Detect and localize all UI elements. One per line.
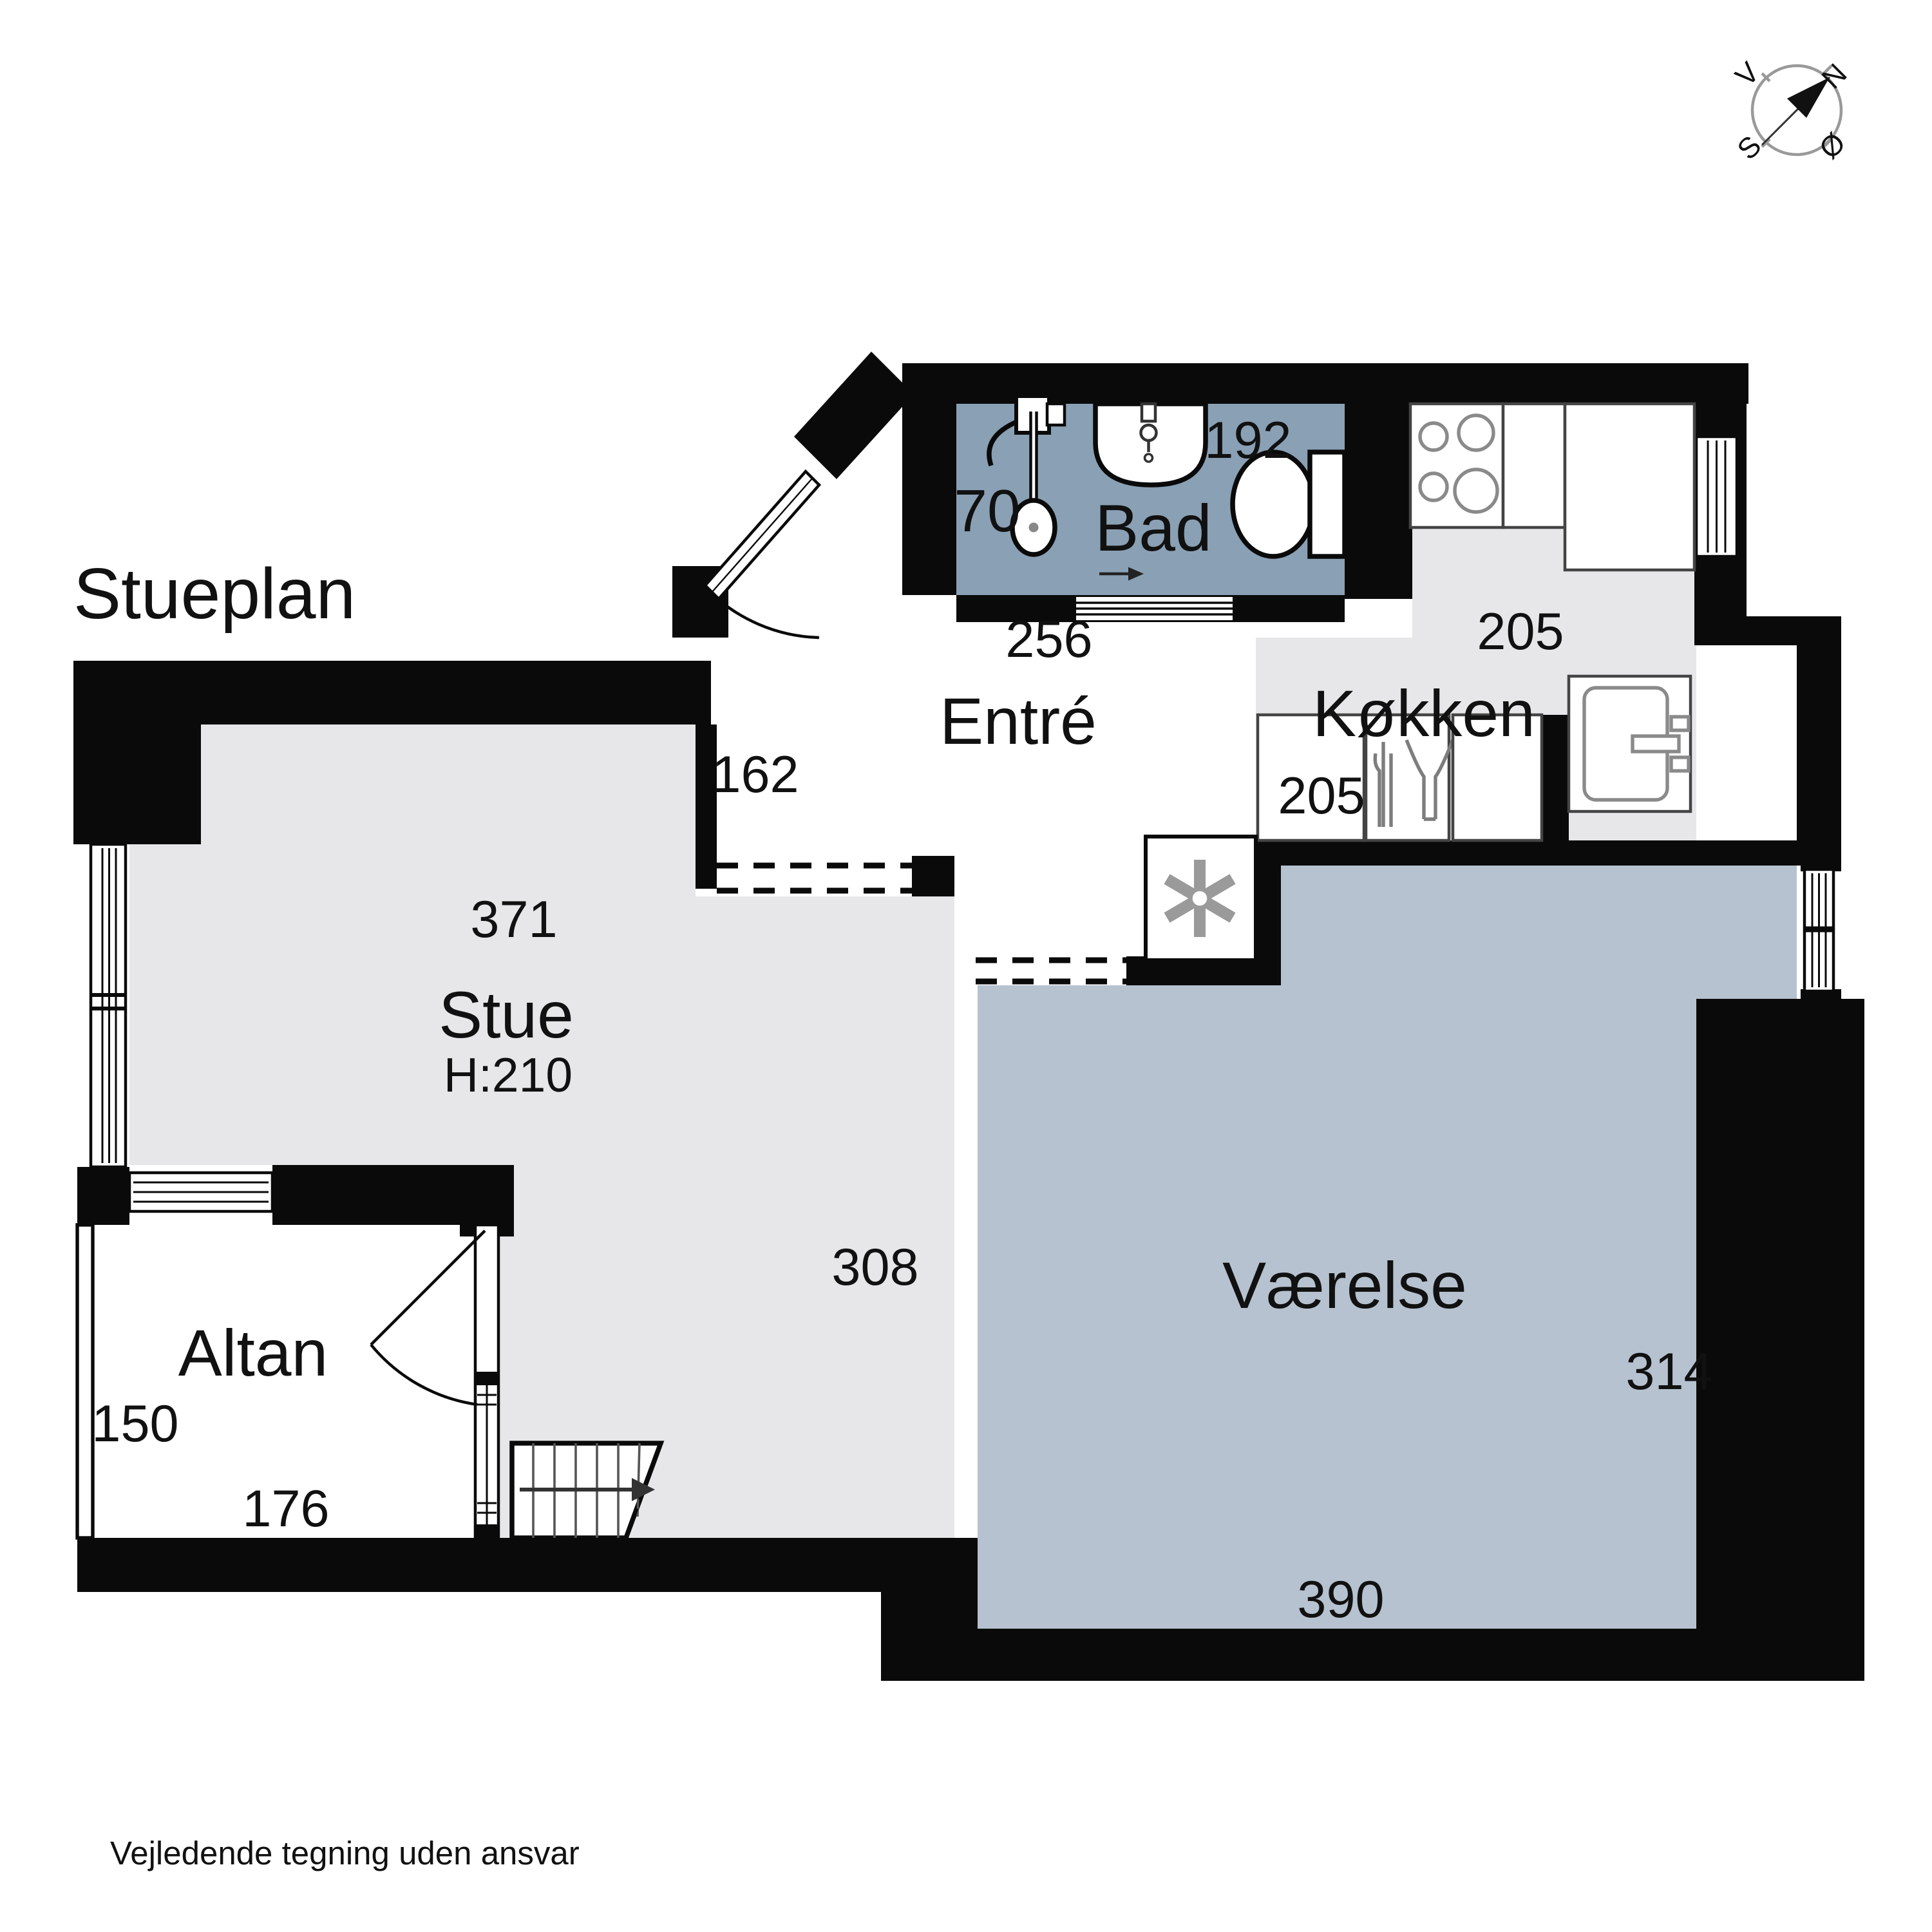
stue-label: Stue [439,978,574,1052]
compass-needle-icon [1787,77,1830,118]
entre-dim-width: 256 [1005,611,1092,668]
compass-east: Ø [1813,126,1852,166]
floor-plan-canvas: N V S Ø Stueplan Vejledende tegning uden… [0,0,1932,1932]
washing-machine-icon [1146,837,1256,960]
stue-dim-width: 371 [470,891,557,949]
kokken-dim-width: 205 [1477,603,1564,661]
floor-plan-svg: N V S Ø Stueplan Vejledende tegning uden… [0,0,1932,1932]
kitchen-sink-icon [1569,676,1690,811]
altan-door-swing-arc [371,1345,477,1405]
footer-disclaimer: Vejledende tegning uden ansvar [110,1835,580,1871]
stue-entre-opening [717,866,912,891]
altan-dim-depth: 150 [91,1395,178,1453]
altan-dim-width: 176 [242,1480,329,1538]
page-title: Stueplan [73,554,355,634]
stue-altan-window [129,1173,272,1211]
bad-dim-shower: 70 [954,477,1020,544]
kitchen-counter-right [1565,404,1694,570]
kitchen-counter [1503,404,1565,527]
entre-dim-depth: 162 [712,746,799,804]
compass-south: S [1730,129,1767,166]
altan-railing [77,1225,93,1538]
stue-left-window [91,844,126,1167]
vaerelse-window [1804,869,1833,991]
altan-label: Altan [178,1316,328,1390]
entre-vaerelse-opening [976,960,1126,981]
vaerelse-label: Værelse [1222,1249,1467,1322]
stue-floor [129,724,954,1538]
stove-icon [1410,404,1503,527]
sliding-door-icon [1076,597,1233,620]
compass: N V S Ø [1728,55,1853,166]
stue-ceiling-height: H:210 [444,1048,573,1102]
entre-label: Entré [940,685,1097,758]
altan-door-frame [475,1225,498,1540]
bad-dim-width: 192 [1204,412,1291,469]
bathroom-sink-icon [1095,404,1206,485]
vaerelse-dim-depth: 314 [1625,1343,1712,1401]
stue-dim-depth: 308 [831,1238,918,1296]
kokken-label: Køkken [1312,677,1535,750]
vaerelse-dim-width: 390 [1297,1571,1384,1629]
bad-label: Bad [1095,491,1212,565]
altan-door-leaf [371,1231,485,1345]
kokken-window [1696,437,1737,556]
kokken-dim-depth: 205 [1278,767,1365,825]
